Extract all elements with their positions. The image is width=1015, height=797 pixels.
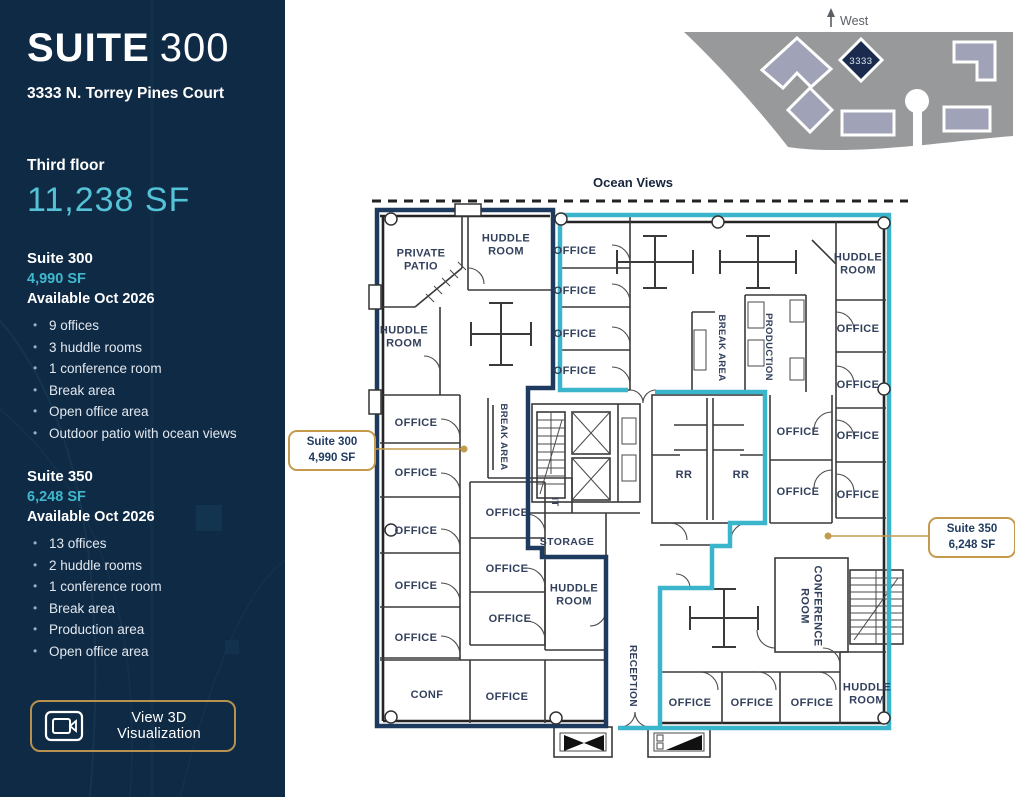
suite-300-callout: Suite 300 4,990 SF [288, 430, 376, 471]
room-label: PRIVATEPATIO [397, 248, 446, 273]
north-arrow-icon [827, 8, 835, 17]
room-label: OFFICE [837, 489, 880, 501]
suite-350-outline-inner [655, 392, 765, 728]
ocean-views-label: Ocean Views [593, 175, 673, 190]
suite-350-callout: Suite 350 6,248 SF [928, 517, 1015, 558]
room-label: OFFICE [669, 697, 712, 709]
room-label: OFFICE [837, 323, 880, 335]
floor-plan: West 3333 Ocean Views [0, 0, 1015, 797]
room-label: OFFICE [395, 632, 438, 644]
building-rect-mid [842, 111, 894, 135]
room-label: OFFICE [731, 697, 774, 709]
room-label: OFFICE [554, 245, 597, 257]
room-label: HUDDLEROOM [550, 583, 598, 608]
room-label: OFFICE [777, 426, 820, 438]
room-label: OFFICE [837, 430, 880, 442]
desk-clusters [471, 236, 796, 647]
room-label: HUDDLEROOM [834, 252, 882, 277]
room-label: BREAK AREA [498, 404, 509, 471]
direction-label: West [840, 14, 869, 28]
site-map: West 3333 [684, 8, 1013, 150]
suite-300-callout-area: 4,990 SF [296, 451, 368, 467]
room-label: HUDDLEROOM [380, 325, 428, 350]
room-label: OFFICE [395, 467, 438, 479]
room-label: OFFICE [395, 417, 438, 429]
cul-de-sac [905, 89, 929, 113]
room-label: RECEPTION [627, 645, 638, 707]
room-label: OFFICE [486, 563, 529, 575]
room-label: OFFICE [489, 613, 532, 625]
room-label: OFFICE [486, 691, 529, 703]
room-label: OFFICE [777, 486, 820, 498]
building-rect-right [944, 107, 990, 131]
room-label: RR [676, 469, 693, 481]
suite-350-callout-area: 6,248 SF [936, 538, 1008, 554]
room-label: OFFICE [395, 525, 438, 537]
room-label: OFFICE [395, 580, 438, 592]
room-label: HUDDLEROOM [482, 233, 530, 258]
room-label: OFFICE [837, 379, 880, 391]
room-label: PRODUCTION [763, 313, 774, 381]
room-label: OFFICE [554, 328, 597, 340]
room-label: RR [733, 469, 750, 481]
room-label: OFFICE [486, 507, 529, 519]
room-label: IT [549, 497, 560, 506]
interior-walls [378, 212, 903, 757]
room-label: OFFICE [554, 285, 597, 297]
building-3333-label: 3333 [849, 56, 872, 67]
room-label: CONF [411, 689, 444, 701]
room-label: STORAGE [540, 536, 595, 548]
room-label: HUDDLEROOM [843, 682, 891, 707]
suite-300-callout-title: Suite 300 [296, 435, 368, 451]
room-label: BREAK AREA [716, 315, 727, 382]
room-label: CONFERENCEROOM [799, 565, 824, 646]
room-label: OFFICE [554, 365, 597, 377]
suite-350-outline-left [560, 215, 628, 390]
room-label: OFFICE [791, 697, 834, 709]
suite-350-callout-title: Suite 350 [936, 522, 1008, 538]
